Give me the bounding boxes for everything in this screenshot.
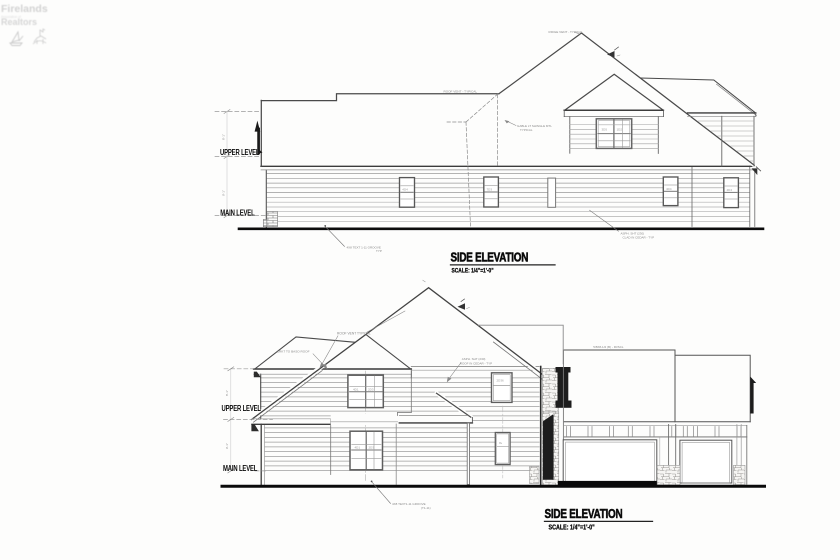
svg-text:4D4: 4D4	[666, 187, 672, 191]
svg-text:3D5: 3D5	[602, 128, 608, 132]
svg-text:CLAD IN CEDAR - TYP: CLAD IN CEDAR - TYP	[623, 235, 655, 239]
svg-text:UPPER LEVEL: UPPER LEVEL	[222, 405, 262, 413]
svg-text:9'-1": 9'-1"	[222, 190, 226, 196]
svg-text:4D1: 4D1	[353, 387, 359, 391]
svg-text:9v: 9v	[499, 441, 503, 445]
svg-text:4D4: 4D4	[727, 188, 733, 192]
svg-text:SCALE: 1/4"=1'-0": SCALE: 1/4"=1'-0"	[452, 268, 494, 275]
svg-text:2D36: 2D36	[497, 378, 505, 382]
svg-text:TYP: TYP	[376, 249, 382, 253]
svg-text:MAIN LEVEL: MAIN LEVEL	[220, 210, 255, 218]
svg-text:8'-1": 8'-1"	[225, 390, 229, 396]
svg-text:TYPICAL: TYPICAL	[520, 128, 533, 132]
svg-text:ROOF VENT - TYPICAL: ROOF VENT - TYPICAL	[444, 89, 478, 93]
svg-text:4D4: 4D4	[402, 188, 408, 192]
svg-text:MAIN LEVEL: MAIN LEVEL	[223, 466, 258, 474]
svg-text:2D3: 2D3	[368, 387, 374, 391]
svg-text:UPPER LEVEL: UPPER LEVEL	[220, 150, 260, 158]
svg-text:ROOF IN CEDAR - TYP: ROOF IN CEDAR - TYP	[460, 361, 492, 365]
svg-text:8'-1": 8'-1"	[222, 134, 226, 140]
svg-text:1D2: 1D2	[617, 128, 623, 132]
svg-text:SIDE ELEVATION: SIDE ELEVATION	[451, 251, 529, 264]
svg-text:4D1: 4D1	[355, 445, 361, 449]
svg-text:CRKT TO BASO ROOF: CRKT TO BASO ROOF	[277, 350, 310, 354]
svg-text:9'-1": 9'-1"	[225, 443, 229, 449]
svg-text:(T1-11): (T1-11)	[421, 506, 431, 510]
svg-text:Firelands: Firelands	[1, 3, 48, 15]
svg-text:SCALE: 1/4"=1'-0": SCALE: 1/4"=1'-0"	[549, 524, 595, 532]
svg-text:SIDE ELEVATION: SIDE ELEVATION	[545, 508, 623, 521]
svg-text:Realtors: Realtors	[1, 17, 37, 27]
svg-text:7D3: 7D3	[487, 187, 493, 191]
svg-text:2D3: 2D3	[369, 445, 375, 449]
svg-text:ROOF VENT TYPICAL: ROOF VENT TYPICAL	[337, 331, 371, 335]
svg-text:5/8X8-1/2 (B) - FRSCL: 5/8X8-1/2 (B) - FRSCL	[593, 345, 624, 349]
